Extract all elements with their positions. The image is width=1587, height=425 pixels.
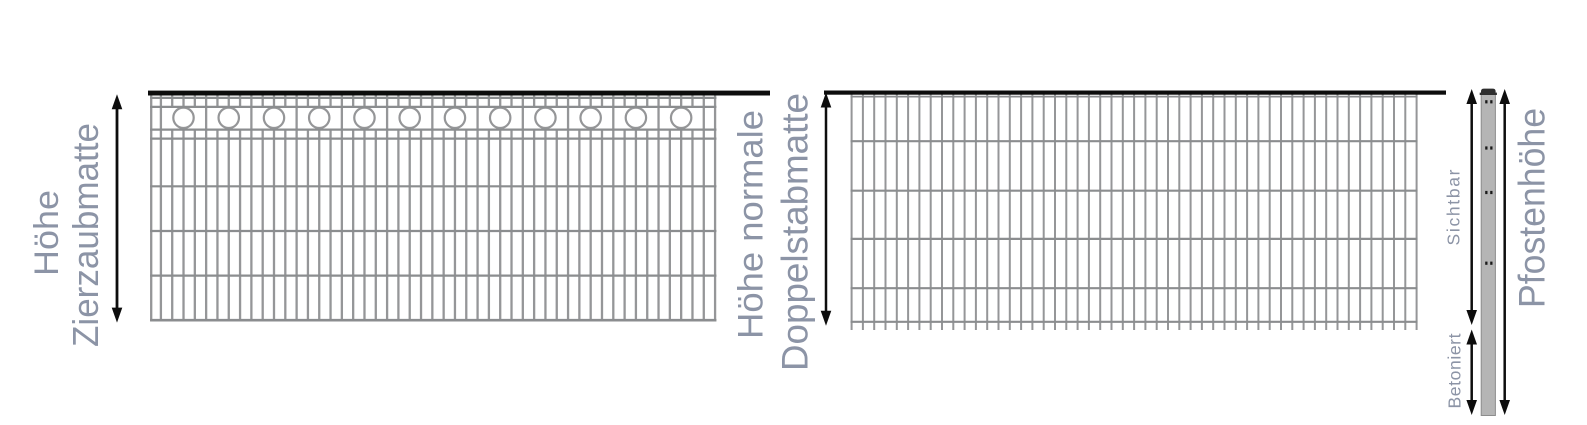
svg-text:Pfostenhöhe: Pfostenhöhe <box>1511 108 1553 308</box>
svg-text:Höhe: Höhe <box>28 190 66 276</box>
svg-text:Höhe normale: Höhe normale <box>732 110 771 339</box>
svg-text:Sichtbar: Sichtbar <box>1444 169 1464 245</box>
svg-text:Betoniert: Betoniert <box>1445 333 1465 408</box>
svg-text:Doppelstabmatte: Doppelstabmatte <box>775 93 816 371</box>
svg-text:Zierzaubmatte: Zierzaubmatte <box>65 123 106 347</box>
